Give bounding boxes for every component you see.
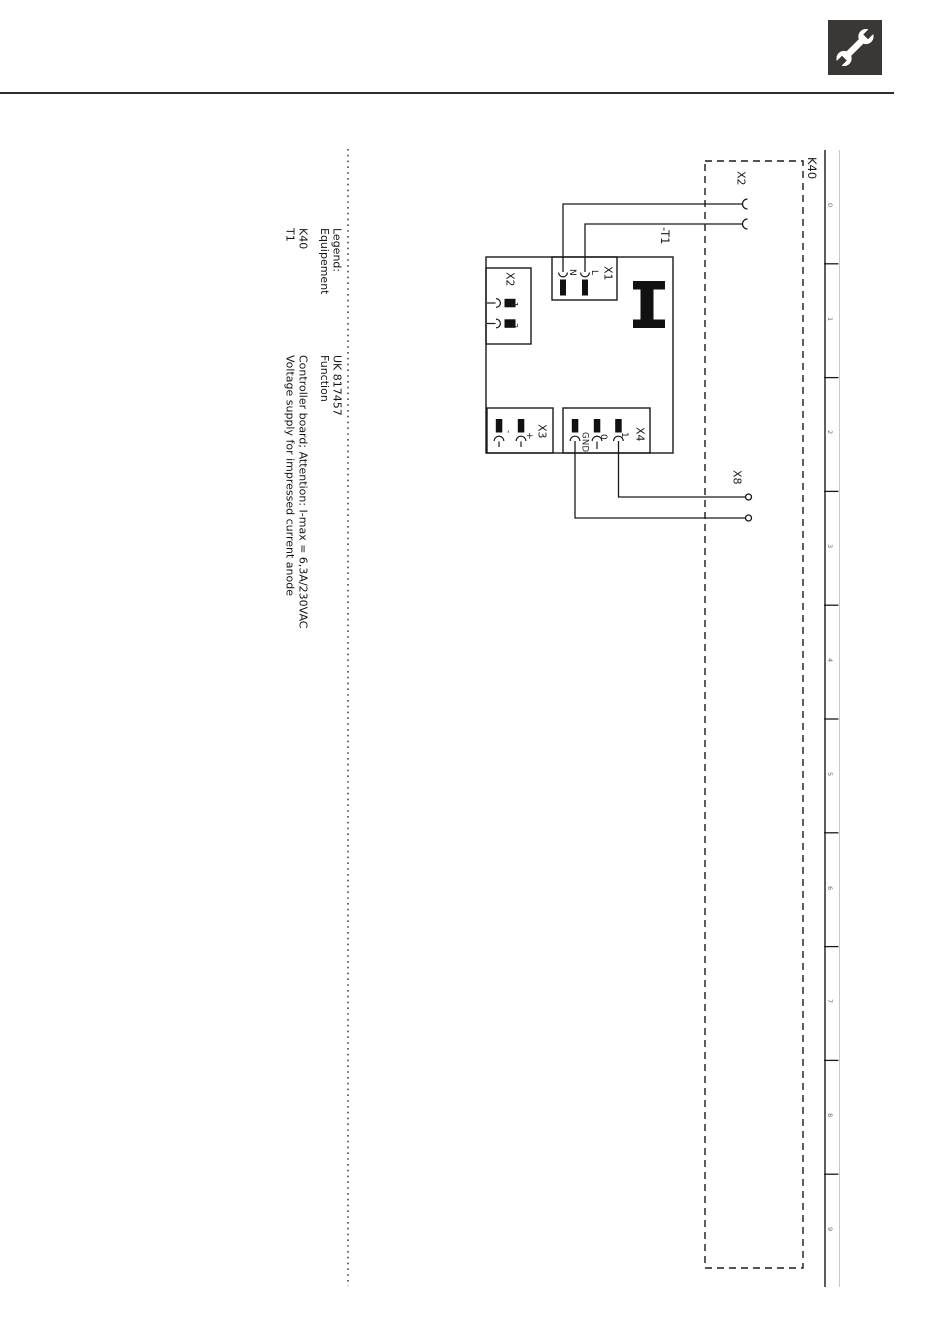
x8-terminal-circle-1 — [746, 494, 752, 500]
x2-terminal-socket-2 — [743, 219, 748, 229]
legend-item-k40: K40 — [296, 228, 309, 294]
legend-t1-function: Voltage supply for impressed current ano… — [283, 355, 296, 629]
t1-board-label: -T1 — [658, 227, 671, 244]
x2-pin-2-label: 2 — [510, 323, 519, 328]
x4-pin-0-label: 0 — [598, 434, 608, 440]
ruler-number-9: 9 — [826, 1227, 833, 1231]
x2-label: X2 — [503, 272, 516, 287]
schematic-canvas — [0, 0, 950, 1344]
x4-pin-gnd-label: GND — [579, 432, 589, 452]
x1-to-x2-wires — [563, 199, 748, 272]
ruler-number-2: 2 — [826, 430, 833, 434]
legend-k40-function: Controller board; Attention: I-max = 6,3… — [296, 355, 309, 629]
x1-pin-l-label: L — [589, 270, 599, 275]
x3-label: X3 — [535, 424, 548, 439]
x4-label: X4 — [633, 427, 646, 442]
x2-terminal-socket-1 — [743, 199, 748, 209]
x8-external-label: X8 — [730, 470, 743, 485]
legend-block-2: UK 817457 Function Controller board; Att… — [283, 355, 343, 629]
k40-module-label: K40 — [805, 157, 818, 179]
legend-block-1: Legend: Equipement K40 T1 — [283, 228, 343, 294]
x2-external-label: X2 — [734, 171, 747, 186]
ruler-number-5: 5 — [826, 772, 833, 776]
k40-module-dashed-box — [705, 161, 803, 1268]
wire-x4-1 — [619, 441, 746, 497]
page: { "header": { "icon": "wrench-icon" }, "… — [0, 0, 950, 1344]
ruler-number-0: 0 — [826, 203, 833, 207]
ibeam-symbol — [633, 281, 665, 328]
x4-pin-1-label: 1 — [619, 432, 629, 438]
legend-item-t1: T1 — [283, 228, 296, 294]
legend-equipment-header: Equipement — [317, 228, 330, 294]
x1-label: X1 — [601, 266, 614, 281]
ruler-number-6: 6 — [826, 886, 833, 890]
x1-pin-n-label: N — [567, 269, 577, 276]
ruler-number-3: 3 — [826, 544, 833, 548]
ruler-ticks — [824, 264, 839, 1174]
ruler-number-1: 1 — [826, 317, 833, 321]
ruler-number-4: 4 — [826, 658, 833, 662]
wire-n — [563, 204, 743, 272]
x3-pin-minus-label: - — [503, 430, 513, 433]
legend-title: Legend: — [330, 228, 343, 294]
legend-uk-number: UK 817457 — [330, 355, 343, 629]
legend-function-header: Function — [317, 355, 330, 629]
x3-pin-plus-label: + — [524, 432, 534, 440]
ruler-number-7: 7 — [826, 999, 833, 1003]
ruler-number-8: 8 — [826, 1113, 833, 1117]
x2-pin-1-label: 1 — [510, 302, 519, 307]
x8-terminal-circle-2 — [746, 515, 752, 521]
x1-pins — [559, 273, 590, 296]
